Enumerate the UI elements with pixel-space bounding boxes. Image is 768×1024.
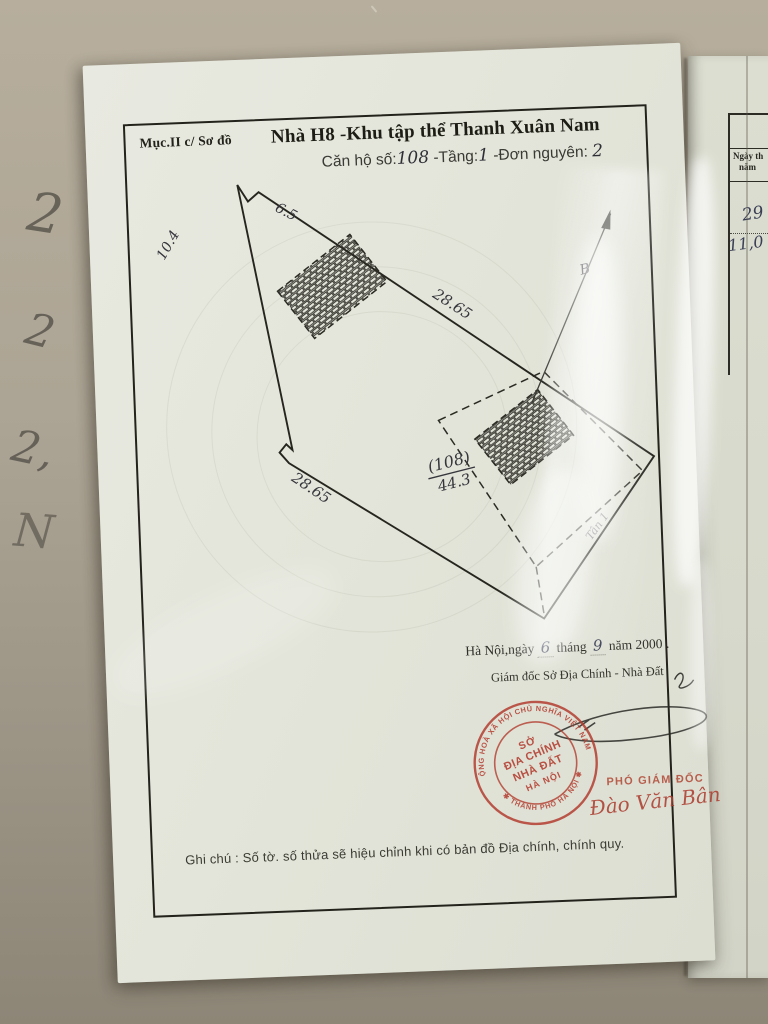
page-crease — [746, 56, 748, 978]
handwritten-entry-1: 29 — [741, 202, 766, 225]
table-header-text: năm — [739, 162, 756, 172]
photo-of-cadastral-document: { "page": { "section_label": "Mục.II c/ … — [0, 0, 768, 1024]
date-mid: tháng — [556, 639, 587, 655]
handwritten-month: 9 — [590, 636, 606, 656]
date-prefix: Hà Nội,ngày — [465, 641, 535, 659]
background-scribble-3: 2, — [7, 420, 59, 479]
main-document-page: Mục.II c/ Sơ đồ Nhà H8 -Khu tập thể Than… — [83, 43, 716, 983]
table-line — [730, 181, 768, 182]
building-block-lower — [475, 390, 574, 485]
building-block-upper — [278, 234, 387, 338]
table-line — [730, 148, 768, 149]
handwritten-day: 6 — [537, 638, 553, 658]
plot-boundary — [237, 169, 660, 629]
table-header-cell: Ngày th năm — [733, 151, 768, 181]
table-header-text: Ngày th — [733, 151, 763, 161]
background-scribble-4: N — [12, 503, 56, 560]
background-scratch — [371, 5, 378, 12]
measurement-upper-right: 28.65 — [429, 284, 476, 323]
document-border-frame: Mục.II c/ Sơ đồ Nhà H8 -Khu tập thể Than… — [123, 104, 677, 918]
date-suffix: năm 2000 . — [609, 636, 670, 653]
parcel-label: (108) 44.3 — [423, 447, 479, 498]
background-scribble-2: 2 — [20, 303, 60, 359]
background-scribble-1: 2 — [23, 180, 67, 248]
north-arrow-head — [601, 210, 612, 230]
stamp-center-text: SỞ ĐỊA CHÍNH NHÀ ĐẤT HÀ NỘI — [497, 725, 574, 798]
measurement-upper-left: 10.4 — [154, 228, 183, 263]
measurement-lower-left: 28.65 — [288, 468, 335, 507]
